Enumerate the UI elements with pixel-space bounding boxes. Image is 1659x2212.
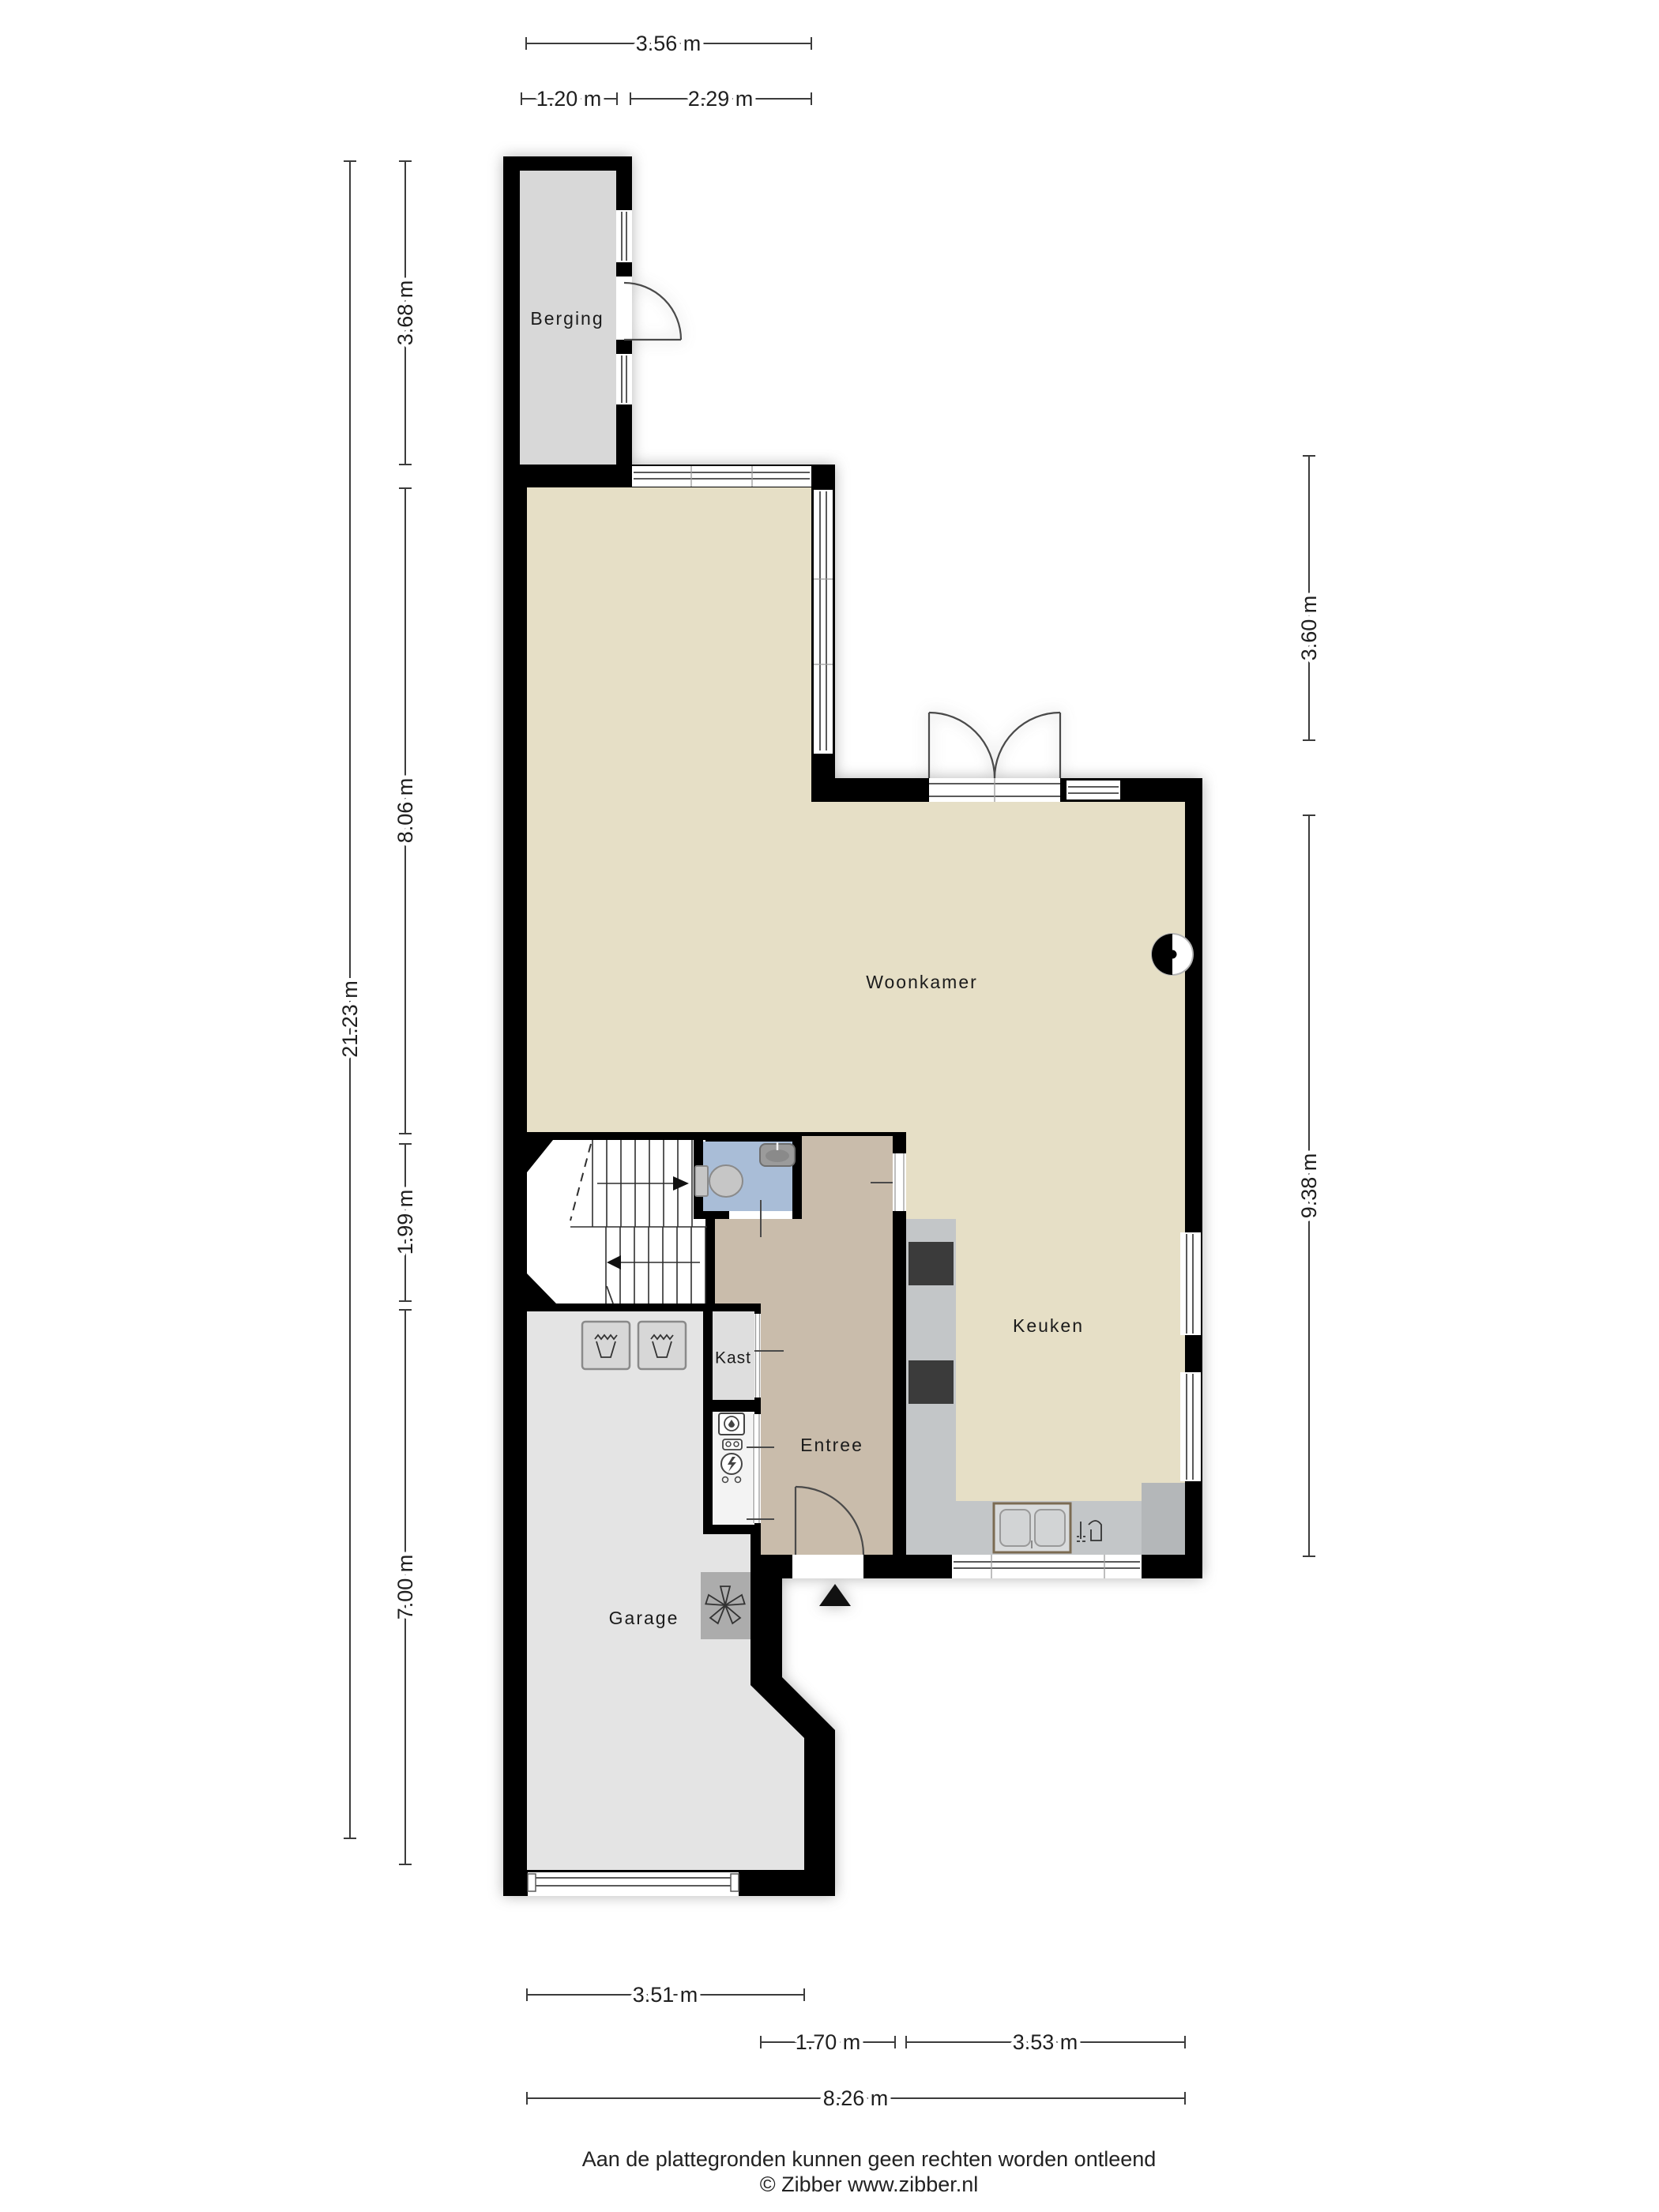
sink-icon <box>760 1142 795 1166</box>
window <box>1180 1372 1201 1481</box>
dim-label: 8.06 m <box>393 778 417 844</box>
window <box>814 490 833 754</box>
dim-label: 8.26 m <box>823 2086 889 2110</box>
window <box>1180 1232 1201 1335</box>
window <box>952 1555 1142 1578</box>
wall-boiler-icon <box>1152 934 1193 975</box>
dim-label: 3.53 m <box>1013 2030 1078 2054</box>
dim-label: 3.60 m <box>1297 596 1321 661</box>
dim-bottom-entree: 1.70 m <box>761 2030 895 2054</box>
dim-label: 21.23 m <box>338 980 362 1058</box>
window <box>616 210 632 262</box>
berging-door <box>616 276 681 340</box>
window <box>1066 781 1120 799</box>
dim-label: 1.99 m <box>393 1190 417 1255</box>
dim-right-top: 3.60 m <box>1297 456 1321 740</box>
dim-label: 7.00 m <box>393 1555 417 1620</box>
dim-right-bottom: 9.38 m <box>1297 815 1321 1556</box>
water-heater-icon <box>719 1413 744 1435</box>
window <box>632 466 811 487</box>
dim-bottom-total: 8.26 m <box>527 2086 1185 2110</box>
dim-top-right: 2.29 m <box>630 87 811 111</box>
dim-label: 9.38 m <box>1297 1153 1321 1219</box>
footer-disclaimer: Aan de plattegronden kunnen geen rechten… <box>582 2147 1157 2171</box>
water-meter-icon <box>723 1439 742 1450</box>
garage-door <box>528 1872 739 1896</box>
entrance-arrow-icon <box>819 1584 851 1606</box>
washing-machine-icon <box>582 1322 630 1369</box>
oven-icon <box>908 1360 954 1404</box>
dim-left-woonkamer: 8.06 m <box>393 488 417 1134</box>
stairwell <box>527 1140 705 1303</box>
dim-label: 1.20 m <box>536 87 602 111</box>
dim-label: 2.29 m <box>688 87 754 111</box>
dim-left-total: 21.23 m <box>338 161 362 1838</box>
washing-machine-icon <box>638 1322 686 1369</box>
room-label-woonkamer: Woonkamer <box>866 972 978 992</box>
dim-bottom-garage: 3.51 m <box>527 1983 804 2007</box>
dim-top-berging: 1.20 m <box>521 87 617 111</box>
footer: Aan de plattegronden kunnen geen rechten… <box>582 2147 1157 2196</box>
room-label-kast: Kast <box>715 1349 751 1367</box>
dim-label: 1.70 m <box>796 2030 861 2054</box>
dim-left-berging: 3.68 m <box>393 161 417 465</box>
dim-left-hal: 1.99 m <box>393 1144 417 1301</box>
dim-label: 3.68 m <box>393 280 417 346</box>
dim-label: 3.51 m <box>633 1983 698 2007</box>
room-label-garage: Garage <box>609 1608 679 1628</box>
dim-top-total: 3.56 m <box>526 32 811 55</box>
floorplan-canvas: 3.56 m 1.20 m 2.29 m 21.23 m 3. <box>0 0 1659 2212</box>
cooktop-icon <box>908 1242 954 1285</box>
building: Berging Woonkamer Keuken Entree Kast Gar… <box>503 156 1202 1896</box>
kitchen-sink-icon <box>994 1503 1070 1552</box>
window <box>616 354 632 404</box>
toilet-icon <box>695 1165 743 1197</box>
dim-left-garage: 7.00 m <box>393 1310 417 1864</box>
footer-copyright: © Zibber www.zibber.nl <box>760 2172 979 2196</box>
room-label-keuken: Keuken <box>1013 1315 1084 1336</box>
tall-cabinet <box>1142 1483 1185 1555</box>
dim-bottom-keuken: 3.53 m <box>906 2030 1185 2054</box>
floorplan-page: 3.56 m 1.20 m 2.29 m 21.23 m 3. <box>0 0 1659 2212</box>
ventilation-unit <box>701 1572 750 1639</box>
french-doors <box>929 713 1060 802</box>
room-label-entree: Entree <box>800 1435 863 1455</box>
room-label-berging: Berging <box>530 308 604 329</box>
dim-label: 3.56 m <box>636 32 702 55</box>
